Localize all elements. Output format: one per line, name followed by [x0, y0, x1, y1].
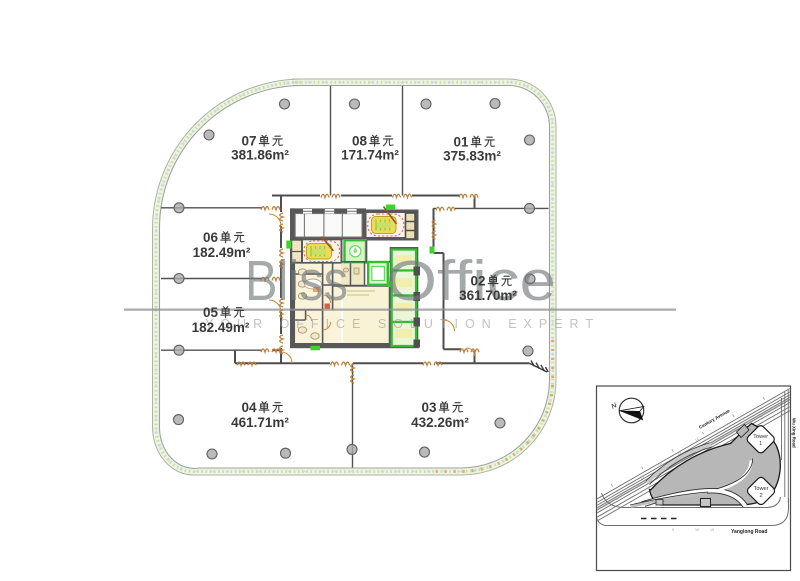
svg-text:08: 08	[352, 134, 368, 149]
svg-text:04: 04	[241, 400, 257, 415]
svg-text:381.86m²: 381.86m²	[231, 148, 289, 163]
svg-text:1: 1	[759, 441, 762, 447]
svg-text:15: 15	[710, 528, 714, 532]
svg-text:2: 2	[759, 493, 762, 499]
svg-text:Bliss: Bliss	[245, 249, 348, 313]
svg-text:06: 06	[203, 230, 219, 245]
svg-text:Wu Xing Road: Wu Xing Road	[792, 418, 797, 448]
svg-text:03: 03	[421, 400, 437, 415]
svg-text:171.74m²: 171.74m²	[341, 148, 399, 163]
svg-text:432.26m²: 432.26m²	[411, 415, 469, 430]
svg-text:05: 05	[203, 305, 219, 320]
svg-text:182.49m²: 182.49m²	[192, 320, 250, 335]
svg-text:Tower: Tower	[753, 434, 768, 440]
svg-text:10: 10	[695, 528, 699, 532]
svg-text:361.70m²: 361.70m²	[459, 288, 517, 303]
svg-text:375.83m²: 375.83m²	[443, 149, 501, 164]
svg-text:07: 07	[241, 134, 256, 149]
svg-text:02: 02	[470, 274, 485, 289]
svg-text:461.71m²: 461.71m²	[231, 415, 289, 430]
svg-text:Yanglong Road: Yanglong Road	[731, 529, 767, 535]
svg-text:Tower: Tower	[754, 486, 769, 492]
svg-text:01: 01	[453, 135, 469, 150]
svg-text:5: 5	[672, 528, 674, 532]
svg-text:182.49m²: 182.49m²	[193, 245, 251, 260]
